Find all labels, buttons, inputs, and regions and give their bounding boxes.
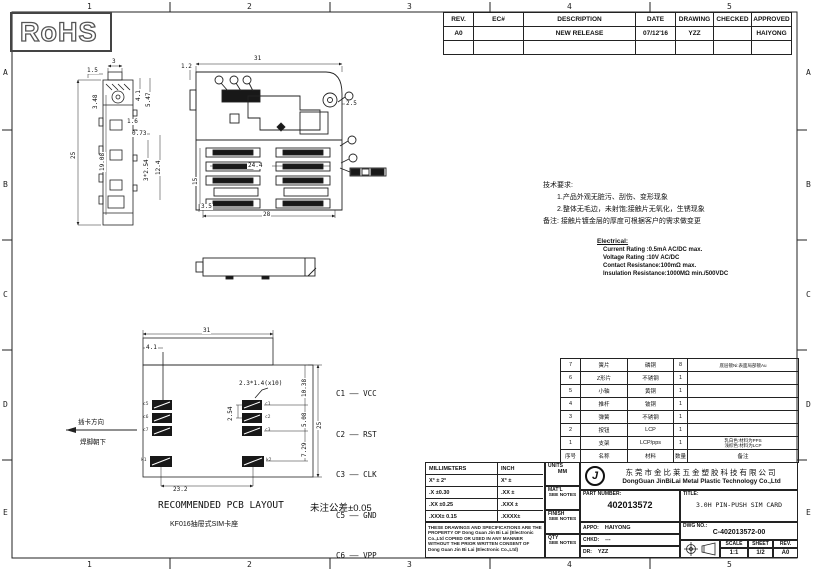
rohs-label: RoHS <box>20 17 98 48</box>
dim-label: 3*2.54 <box>144 158 150 182</box>
electrical-line: Voltage Rating :10V AC/DC <box>597 254 728 262</box>
title-cell: TITLE: 3.0H PIN-PUSH SIM CARD <box>680 490 798 522</box>
dim-label: 1.2 <box>180 64 193 70</box>
rev-value: A0 <box>773 548 798 558</box>
tolerance-cell: .XXXX± <box>497 510 543 522</box>
rev-header: EC# <box>473 12 523 26</box>
tech-notes-title: 技术要求: <box>543 180 803 192</box>
sheet-value: 1/2 <box>748 548 773 558</box>
pad-label: k1 <box>141 459 146 464</box>
dim-label: 4.1 <box>145 345 158 351</box>
bom-cell: 支架 <box>580 436 627 449</box>
card-insert-direction-label: 插卡方向 <box>78 416 104 426</box>
bom-cell: 1 <box>560 436 580 449</box>
dim-label: 5.08 <box>302 412 308 428</box>
rev-cell: A0 <box>443 26 473 40</box>
part-number-cell: PART NUMBER: 402013572 <box>580 490 680 522</box>
bom-cell: 底层镀Ni:表面局部镀Au <box>687 358 798 371</box>
zone-col-label: 3 <box>407 560 412 569</box>
checked-cell: CHKD: --- <box>580 534 680 546</box>
bom-cell: 磷铜 <box>627 358 673 371</box>
approved-label: APPO: <box>581 525 599 531</box>
rev-cell <box>473 40 523 54</box>
rev-cell <box>713 26 751 40</box>
dim-label: 1.5 <box>86 68 99 74</box>
pad-label: c3 <box>265 429 270 434</box>
rev-cell <box>675 40 713 54</box>
pad-label: c1 <box>265 403 270 408</box>
bom-cell <box>687 384 798 397</box>
zone-row-label: D <box>806 400 811 409</box>
bom-cell: 小轴 <box>580 384 627 397</box>
qty-cell: QTY SEE NOTES <box>545 534 580 558</box>
bom-cell <box>687 397 798 410</box>
company-name-cn: 东莞市金比莱五金塑胶科技有限公司 <box>610 467 793 478</box>
drawn-value: YZZ <box>598 549 608 555</box>
general-tolerance-note: 未注公差±0.05 <box>310 500 372 514</box>
dim-label: 25 <box>71 151 77 160</box>
bom-cell: 1 <box>673 436 687 449</box>
dim-label: 31 <box>202 328 211 334</box>
tolerance-cell: .XXX ± <box>497 498 543 510</box>
rev-cell: NEW RELEASE <box>523 26 635 40</box>
sheet-label: SHEET <box>748 540 773 548</box>
finish-cell: FINISH SEE NOTES <box>545 510 580 534</box>
bom-cell <box>687 423 798 436</box>
tolerance-cell: .XX ±0.25 <box>425 498 497 510</box>
zone-row-label: B <box>806 180 811 189</box>
rev-header: APPROVED <box>751 12 791 26</box>
zone-col-label: 1 <box>87 560 92 569</box>
tech-note-item: 2.整体无毛边，未射饱;接触片无氧化，生锈现象 <box>543 204 803 216</box>
tolerance-header: MILLIMETERS <box>425 462 497 474</box>
electrical-line: Current Rating :0.5mA AC/DC max. <box>597 246 728 254</box>
dim-label: 19.08 <box>100 152 106 172</box>
tech-note-item: 1.产品外观无脏污、刮伤、变形现象 <box>543 192 803 204</box>
bom-cell: 5 <box>560 384 580 397</box>
pin-assignment-list: C1 —— VCC C2 —— RST C3 —— CLK C5 —— GND … <box>336 360 377 571</box>
checked-label: CHKD: <box>581 537 599 543</box>
bom-header: 数量 <box>673 449 687 462</box>
bom-cell: 1 <box>673 423 687 436</box>
bom-table: 7 簧片 磷铜 8 底层镀Ni:表面局部镀Au 6 Z形片 不锈钢 1 5 小轴… <box>560 358 799 463</box>
pin-line: C3 —— CLK <box>336 468 377 482</box>
approved-cell: APPO: HAIYONG <box>580 522 680 534</box>
checked-value: --- <box>605 537 611 543</box>
electrical-line: Insulation Resistance:1000MΩ min./500VDC <box>597 270 728 278</box>
dim-label: 28 <box>262 212 271 218</box>
tolerance-cell: X° ± 2° <box>425 474 497 486</box>
dim-label: 3.48 <box>93 94 99 110</box>
bom-header: 备注 <box>687 449 798 462</box>
company-logo-icon: J <box>585 466 605 486</box>
finish-value: SEE NOTES <box>546 517 579 522</box>
pin-line: C1 —— VCC <box>336 387 377 401</box>
rev-cell <box>443 40 473 54</box>
bom-header: 材料 <box>627 449 673 462</box>
pad-label: k2 <box>266 459 271 464</box>
dim-label: 7.29 <box>302 442 308 458</box>
bom-cell: 4 <box>560 397 580 410</box>
zone-col-label: 5 <box>727 2 732 11</box>
pad-label: c2 <box>265 416 270 421</box>
product-name-label: KF016抽屉式SIM卡座 <box>170 519 238 529</box>
part-number-label: PART NUMBER: <box>581 491 679 497</box>
rev-cell: HAIYONG <box>751 26 791 40</box>
rev-cell <box>713 40 751 54</box>
zone-row-label: A <box>806 68 811 77</box>
dim-label: 1.6 <box>126 119 139 125</box>
dim-label: 15 <box>193 177 199 186</box>
part-number-value: 402013572 <box>581 500 679 510</box>
bom-cell: 弹簧 <box>580 410 627 423</box>
bom-cell: 1 <box>673 384 687 397</box>
bom-cell: 1 <box>673 410 687 423</box>
bom-header: 名称 <box>580 449 627 462</box>
rev-cell <box>751 40 791 54</box>
zone-col-label: 2 <box>247 2 252 11</box>
bom-cell: 2 <box>560 423 580 436</box>
bom-cell: 1 <box>673 371 687 384</box>
zone-col-label: 1 <box>87 2 92 11</box>
bom-cell: 推杆 <box>580 397 627 410</box>
drawn-label: DR: <box>581 549 592 555</box>
drawn-cell: DR: YZZ <box>580 546 680 558</box>
tolerance-cell: .XX ± <box>497 486 543 498</box>
bom-cell: 黄铜 <box>627 384 673 397</box>
rev-cell <box>473 26 523 40</box>
zone-col-label: 3 <box>407 2 412 11</box>
scale-value: 1:1 <box>720 548 748 558</box>
dwg-no-value: C-402013572-00 <box>681 529 797 536</box>
rev-cell <box>635 40 675 54</box>
pin-line: C6 —— VPP <box>336 549 377 563</box>
bom-cell: 不锈钢 <box>627 410 673 423</box>
bom-cell: 6 <box>560 371 580 384</box>
solder-side-label: 焊脚朝下 <box>80 436 106 446</box>
dim-label: 2.54 <box>228 406 234 422</box>
dim-label: 10.38 <box>302 378 308 398</box>
dim-label: 3 <box>111 59 117 65</box>
electrical-line: Contact Resistance:100mΩ max. <box>597 262 728 270</box>
zone-row-label: C <box>3 290 8 299</box>
rohs-mark: RoHS <box>10 12 112 52</box>
tolerance-cell: .XXX± 0.15 <box>425 510 497 522</box>
zone-col-label: 4 <box>567 560 572 569</box>
tolerance-header: INCH <box>497 462 543 474</box>
rev-header: DATE <box>635 12 675 26</box>
scale-label: SCALE <box>720 540 748 548</box>
tolerance-table: MILLIMETERS INCH X° ± 2° X° ± .X ±0.30 .… <box>425 462 545 522</box>
dim-label: 31 <box>253 56 262 62</box>
zone-col-label: 5 <box>727 560 732 569</box>
pad-label: c6 <box>143 416 148 421</box>
title-value: 3.0H PIN-PUSH SIM CARD <box>681 501 797 509</box>
tolerance-cell: X° ± <box>497 474 543 486</box>
electrical-title: Electrical: <box>597 238 728 246</box>
bom-cell: 按钮 <box>580 423 627 436</box>
bom-cell <box>687 371 798 384</box>
zone-row-label: E <box>3 508 8 517</box>
dim-label: 3.5 <box>200 204 213 210</box>
bom-header: 序号 <box>560 449 580 462</box>
bom-cell: 8 <box>673 358 687 371</box>
bom-cell: 不锈钢 <box>627 371 673 384</box>
dim-label: 4.1 <box>136 89 142 102</box>
bom-cell: 乳白色:材料为PPS 浅棕色:材料为LCP <box>687 436 798 449</box>
zone-col-label: 4 <box>567 2 572 11</box>
electrical-notes: Electrical: Current Rating :0.5mA AC/DC … <box>597 238 728 278</box>
bom-cell: 3 <box>560 410 580 423</box>
tolerance-cell: .X ±0.30 <box>425 486 497 498</box>
rev-cell: YZZ <box>675 26 713 40</box>
bom-cell <box>687 410 798 423</box>
zone-row-label: C <box>806 290 811 299</box>
bom-cell: Z形片 <box>580 371 627 384</box>
title-label: TITLE: <box>681 491 797 497</box>
zone-row-label: B <box>3 180 8 189</box>
company-header: J 东莞市金比莱五金塑胶科技有限公司 DongGuan JinBiLai Met… <box>580 462 798 490</box>
bom-cell: LCP <box>627 423 673 436</box>
bom-cell: 铍铜 <box>627 397 673 410</box>
bom-cell: 簧片 <box>580 358 627 371</box>
pad-label: c5 <box>143 403 148 408</box>
bom-cell: 7 <box>560 358 580 371</box>
bom-cell: LCP/pps <box>627 436 673 449</box>
tech-note-remark: 备注: 接触片镀金层的厚度可根据客户的需求做变更 <box>543 216 803 228</box>
dim-label: 0.73 <box>131 131 147 137</box>
dim-label: 25 <box>317 421 323 430</box>
dwg-no-cell: DWG NO.: C-402013572-00 <box>680 522 798 540</box>
company-name-en: DongGuan JinBiLai Metal Plastic Technolo… <box>610 478 793 485</box>
rev-header: CHECKED <box>713 12 751 26</box>
material-cell: MAT'L SEE NOTES <box>545 486 580 510</box>
recommended-pcb-layout-label: RECOMMENDED PCB LAYOUT <box>158 500 284 511</box>
rev-label: REV. <box>773 540 798 548</box>
dim-label: 12.4 <box>156 160 162 176</box>
zone-col-label: 2 <box>247 560 252 569</box>
dim-label: 23.2 <box>172 487 188 493</box>
material-value: SEE NOTES <box>546 493 579 498</box>
dim-label: 5.47 <box>146 92 152 108</box>
technical-notes: 技术要求: 1.产品外观无脏污、刮伤、变形现象 2.整体无毛边，未射饱;接触片无… <box>543 180 803 228</box>
rev-cell <box>523 40 635 54</box>
bom-cell: 1 <box>673 397 687 410</box>
approved-value: HAIYONG <box>605 525 631 531</box>
pin-line: C2 —— RST <box>336 428 377 442</box>
third-angle-projection-icon <box>681 541 719 557</box>
rev-header: DESCRIPTION <box>523 12 635 26</box>
projection-symbol-cell <box>680 540 720 558</box>
units-cell: UNITS MM <box>545 462 580 486</box>
revision-table: REV. EC# DESCRIPTION DATE DRAWING CHECKE… <box>443 12 792 55</box>
qty-value: SEE NOTES <box>546 541 579 546</box>
legal-notice: THESE DRAWINGS AND SPECIFICATIONS ARE TH… <box>425 522 545 558</box>
pad-label: c7 <box>143 429 148 434</box>
zone-row-label: E <box>806 508 811 517</box>
rev-header: REV. <box>443 12 473 26</box>
zone-row-label: A <box>3 68 8 77</box>
rev-cell: 07/12'16 <box>635 26 675 40</box>
units-value: MM <box>546 469 579 475</box>
rev-header: DRAWING <box>675 12 713 26</box>
dim-label: 2.3*1.4(x10) <box>238 381 283 387</box>
dim-label: 24.4 <box>247 163 263 169</box>
zone-row-label: D <box>3 400 8 409</box>
engineering-drawing-sheet: 1 2 3 4 5 1 2 3 4 5 A B C D E A B C D E … <box>0 0 817 571</box>
dim-label: 2.5 <box>345 101 358 107</box>
